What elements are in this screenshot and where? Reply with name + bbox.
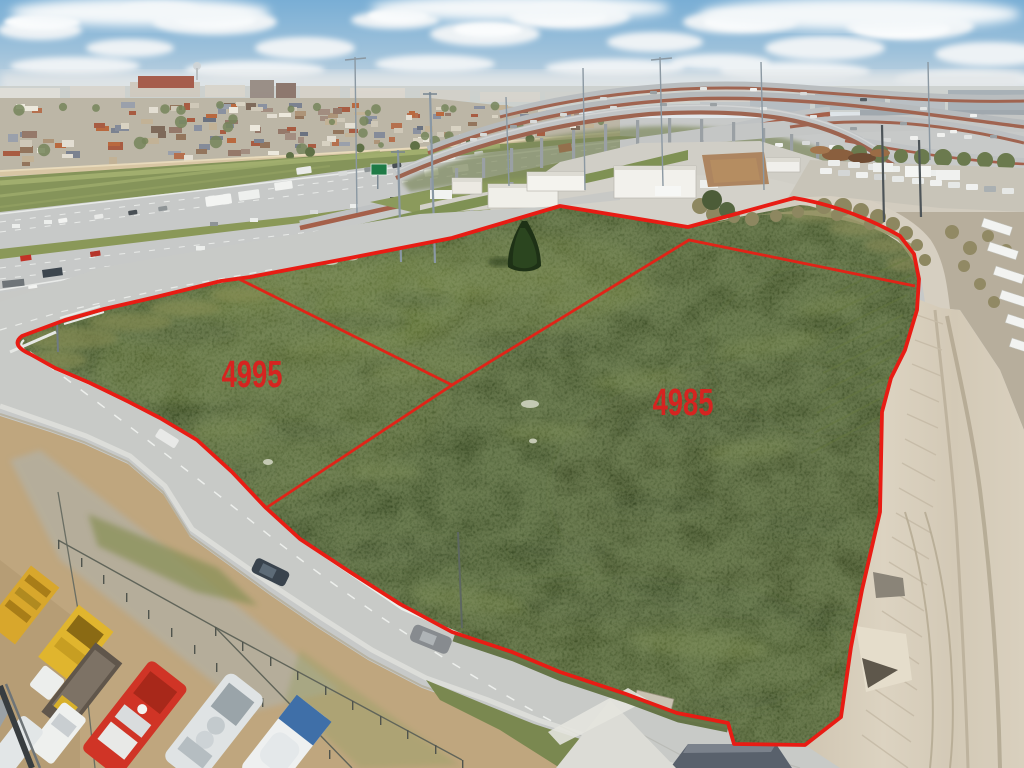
- svg-text:4995: 4995: [222, 354, 283, 396]
- svg-text:4985: 4985: [653, 382, 714, 424]
